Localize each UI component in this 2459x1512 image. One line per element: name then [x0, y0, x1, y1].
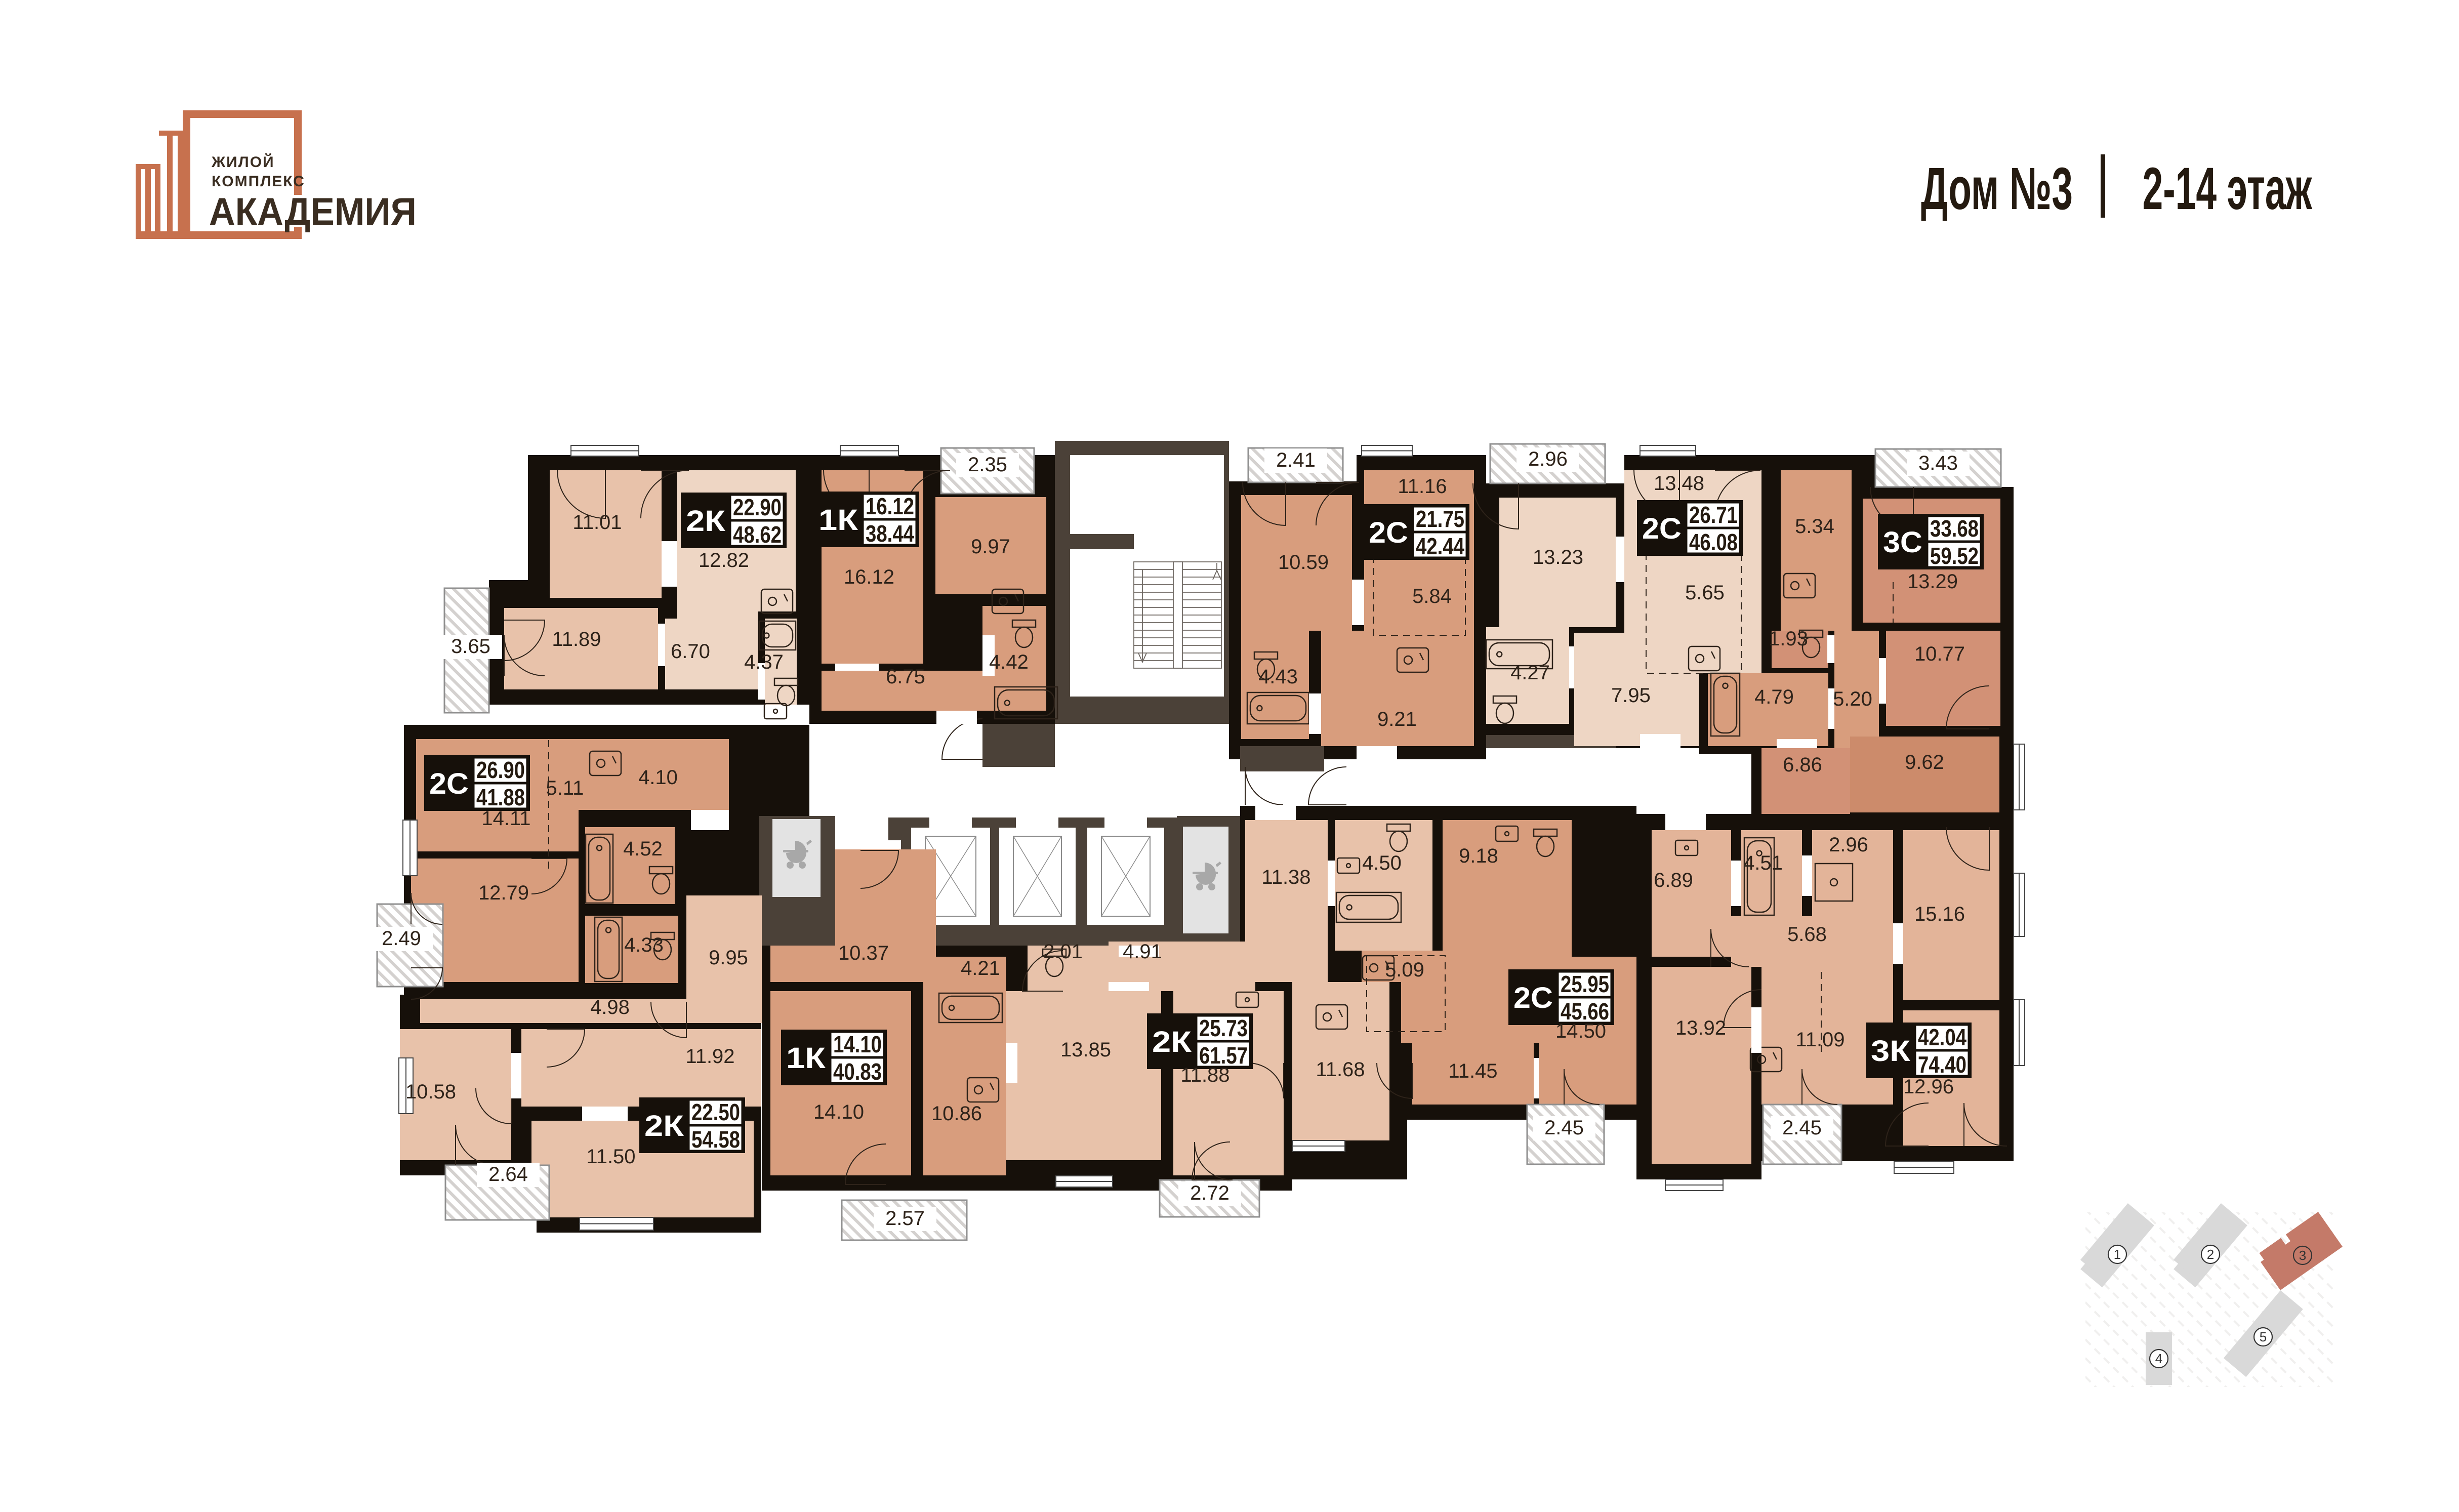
svg-text:ЖИЛОЙ: ЖИЛОЙ: [211, 153, 275, 171]
svg-text:3.43: 3.43: [1918, 452, 1958, 474]
svg-text:16.12: 16.12: [866, 493, 914, 519]
svg-text:5.11: 5.11: [546, 777, 584, 799]
svg-text:12.96: 12.96: [1903, 1076, 1954, 1098]
svg-text:4.52: 4.52: [623, 838, 663, 860]
svg-text:15.16: 15.16: [1914, 903, 1965, 925]
svg-text:2.35: 2.35: [968, 454, 1007, 476]
svg-text:14.10: 14.10: [813, 1101, 864, 1123]
svg-text:54.58: 54.58: [691, 1126, 740, 1153]
svg-text:1К: 1К: [786, 1042, 826, 1075]
svg-text:6.89: 6.89: [1654, 869, 1693, 891]
svg-text:10.37: 10.37: [838, 942, 889, 964]
svg-text:33.68: 33.68: [1930, 515, 1979, 542]
svg-text:11.68: 11.68: [1316, 1058, 1365, 1081]
svg-text:4.42: 4.42: [989, 651, 1029, 673]
svg-text:3.65: 3.65: [451, 635, 490, 658]
svg-text:48.62: 48.62: [733, 521, 782, 548]
svg-text:46.08: 46.08: [1689, 529, 1738, 555]
svg-text:21.75: 21.75: [1416, 506, 1464, 532]
svg-text:2С: 2С: [1369, 516, 1408, 549]
svg-text:5.34: 5.34: [1795, 515, 1834, 538]
svg-text:2-14 этаж: 2-14 этаж: [2143, 155, 2313, 222]
svg-text:3К: 3К: [1871, 1035, 1911, 1068]
svg-text:13.48: 13.48: [1654, 472, 1704, 495]
svg-text:40.83: 40.83: [833, 1058, 882, 1085]
svg-text:26.71: 26.71: [1689, 502, 1738, 528]
svg-text:2.96: 2.96: [1528, 448, 1568, 470]
svg-text:2.41: 2.41: [1276, 449, 1316, 471]
svg-text:7.95: 7.95: [1611, 684, 1651, 707]
svg-text:1: 1: [2114, 1247, 2121, 1262]
svg-text:5.65: 5.65: [1685, 582, 1725, 604]
svg-text:59.52: 59.52: [1930, 543, 1979, 569]
svg-text:4.37: 4.37: [744, 651, 784, 673]
svg-text:2.45: 2.45: [1782, 1117, 1822, 1139]
svg-text:2К: 2К: [686, 505, 726, 538]
svg-text:11.92: 11.92: [685, 1045, 734, 1068]
svg-text:12.79: 12.79: [478, 882, 529, 904]
svg-text:11.89: 11.89: [552, 628, 601, 650]
svg-text:11.01: 11.01: [572, 511, 622, 534]
svg-text:4.27: 4.27: [1510, 662, 1550, 684]
svg-text:4.91: 4.91: [1123, 941, 1162, 963]
svg-text:4: 4: [2155, 1351, 2162, 1366]
svg-text:11.09: 11.09: [1795, 1029, 1845, 1051]
svg-text:2.57: 2.57: [885, 1207, 925, 1230]
svg-text:12.82: 12.82: [699, 549, 749, 571]
svg-text:4.79: 4.79: [1754, 686, 1794, 708]
svg-text:16.12: 16.12: [844, 566, 894, 588]
svg-text:10.86: 10.86: [931, 1102, 982, 1125]
svg-text:2.01: 2.01: [1043, 941, 1083, 963]
svg-text:2.49: 2.49: [382, 927, 421, 950]
svg-text:2.64: 2.64: [488, 1163, 528, 1186]
svg-text:2К: 2К: [1152, 1026, 1192, 1058]
svg-text:10.59: 10.59: [1278, 551, 1329, 574]
svg-text:74.40: 74.40: [1918, 1051, 1966, 1078]
svg-text:22.50: 22.50: [691, 1099, 740, 1125]
svg-text:1К: 1К: [818, 504, 858, 537]
svg-text:2К: 2К: [644, 1110, 684, 1142]
svg-text:25.95: 25.95: [1561, 971, 1609, 997]
svg-text:14.50: 14.50: [1555, 1020, 1606, 1042]
svg-text:25.73: 25.73: [1199, 1015, 1248, 1041]
svg-text:6.75: 6.75: [886, 666, 925, 688]
svg-text:14.10: 14.10: [833, 1031, 882, 1057]
svg-text:4.10: 4.10: [638, 766, 678, 789]
svg-text:38.44: 38.44: [866, 520, 914, 547]
svg-text:4.21: 4.21: [961, 957, 1000, 979]
svg-text:13.85: 13.85: [1060, 1039, 1111, 1061]
svg-text:11.50: 11.50: [586, 1146, 635, 1168]
svg-text:2С: 2С: [429, 767, 469, 800]
svg-text:41.88: 41.88: [476, 784, 525, 810]
svg-text:9.21: 9.21: [1377, 708, 1417, 730]
svg-text:11.88: 11.88: [1180, 1064, 1229, 1086]
svg-text:4.43: 4.43: [1258, 666, 1298, 688]
svg-text:14.11: 14.11: [481, 807, 530, 830]
svg-text:4.33: 4.33: [624, 934, 664, 956]
svg-text:6.70: 6.70: [671, 640, 710, 663]
svg-text:5: 5: [2260, 1329, 2267, 1344]
svg-text:2.45: 2.45: [1544, 1117, 1584, 1139]
svg-text:13.29: 13.29: [1907, 570, 1958, 593]
svg-text:5.68: 5.68: [1787, 923, 1827, 946]
svg-text:10.58: 10.58: [405, 1081, 456, 1103]
svg-text:АКАДЕМИЯ: АКАДЕМИЯ: [209, 190, 417, 233]
svg-text:13.23: 13.23: [1533, 546, 1583, 568]
svg-text:2: 2: [2207, 1247, 2214, 1262]
svg-text:1.93: 1.93: [1769, 628, 1808, 650]
svg-text:5.09: 5.09: [1385, 959, 1424, 981]
svg-text:2С: 2С: [1642, 512, 1682, 545]
svg-text:2.96: 2.96: [1829, 834, 1868, 856]
svg-text:42.04: 42.04: [1918, 1024, 1966, 1050]
svg-text:6.86: 6.86: [1783, 754, 1822, 776]
svg-text:11.38: 11.38: [1261, 866, 1310, 888]
svg-text:5.84: 5.84: [1412, 585, 1452, 607]
svg-text:9.18: 9.18: [1459, 845, 1498, 867]
svg-text:9.62: 9.62: [1905, 751, 1944, 773]
svg-text:4.50: 4.50: [1362, 852, 1402, 874]
svg-text:2.72: 2.72: [1190, 1182, 1229, 1204]
svg-text:11.16: 11.16: [1398, 475, 1447, 498]
svg-text:4.98: 4.98: [590, 996, 630, 1018]
svg-text:9.97: 9.97: [971, 536, 1010, 558]
svg-text:Дом №3: Дом №3: [1921, 155, 2073, 222]
svg-text:22.90: 22.90: [733, 494, 782, 520]
svg-text:26.90: 26.90: [476, 757, 525, 783]
svg-text:4.51: 4.51: [1743, 852, 1783, 874]
svg-text:5.20: 5.20: [1833, 688, 1872, 710]
svg-text:13.92: 13.92: [1675, 1017, 1726, 1039]
svg-text:10.77: 10.77: [1914, 643, 1965, 665]
svg-text:3: 3: [2299, 1248, 2306, 1263]
svg-text:2С: 2С: [1513, 982, 1553, 1014]
svg-text:11.45: 11.45: [1448, 1060, 1497, 1082]
svg-text:КОМПЛЕКС: КОМПЛЕКС: [212, 173, 305, 190]
svg-text:9.95: 9.95: [709, 947, 748, 969]
svg-text:42.44: 42.44: [1416, 533, 1464, 559]
svg-text:3С: 3С: [1883, 526, 1922, 559]
